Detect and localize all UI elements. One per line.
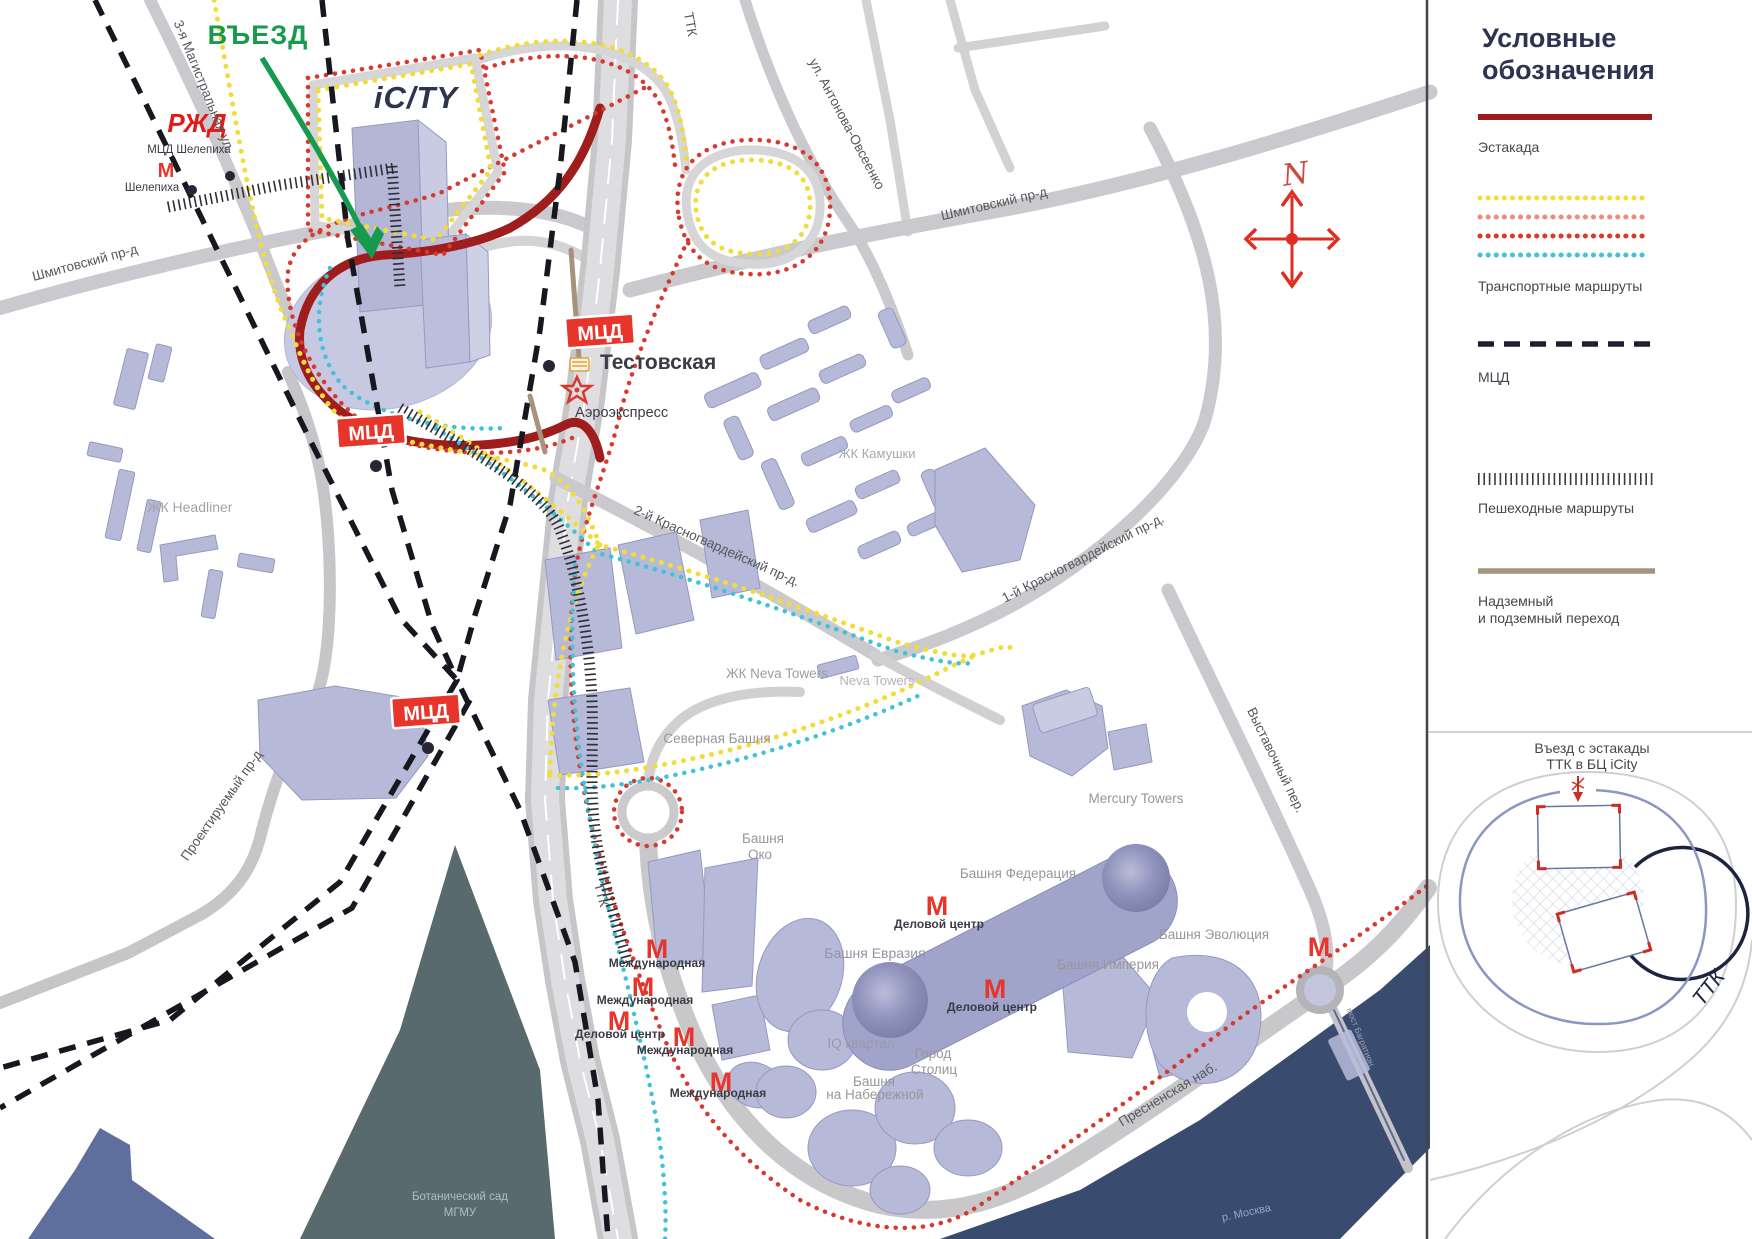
legend-crossing-label2: и подземный переход (1478, 610, 1619, 626)
legend-route-samples (1480, 198, 1650, 255)
mcd-badge-label: МЦД (577, 320, 624, 345)
legend-crossing-label1: Надземный (1478, 593, 1553, 609)
legend-title-line1: Условные (1482, 23, 1616, 53)
map-area: МЦД МЦД МЦД М М М М М М М М М РЖД МЦД Ше… (0, 0, 1430, 1239)
place-botsad-line1: Ботанический сад (412, 1191, 508, 1203)
station-label-mcd-shelepikha: МЦД Шелепиха (147, 144, 231, 156)
inset-black-arc (1625, 847, 1748, 979)
evolution-cut (1187, 992, 1227, 1032)
place-gorod-line1: Город (915, 1046, 952, 1061)
legend-estakada-label: Эстакада (1478, 139, 1539, 155)
place-evraziya: Башня Евразия (824, 945, 925, 961)
legend-transport-label: Транспортные маршруты (1478, 278, 1642, 294)
station-label-mezhdunarodnaya: Международная (609, 956, 705, 970)
street-ttk-south: ТТК (591, 881, 612, 909)
entrance-label: ВЪЕЗД (208, 20, 309, 50)
place-mercury: Mercury Towers (1088, 791, 1183, 806)
icity-logo: iC/TY (374, 80, 461, 115)
roundabout-bridge (1300, 970, 1340, 1010)
place-severnaya: Северная Башня (663, 731, 770, 746)
station-label-aeroexpress: Аэроэкспресс (575, 405, 668, 421)
place-headliner: ЖК Headliner (148, 499, 233, 515)
aeroexpress-mini-icon (570, 358, 589, 371)
legend-panel: Условные обозначения Эстакада Транспортн… (1427, 0, 1752, 1239)
street-ttk-north: ТТК (681, 11, 700, 38)
place-gorod-line2: Столиц (911, 1062, 957, 1077)
station-label-delovoy-centr: Деловой центр (575, 1027, 665, 1041)
legend-pedestrian-label: Пешеходные маршруты (1478, 500, 1634, 516)
pond (28, 1128, 215, 1239)
place-federation: Башня Федерация (960, 866, 1076, 881)
place-imperia: Башня Империя (1057, 957, 1159, 972)
access-map-page: МЦД МЦД МЦД М М М М М М М М М РЖД МЦД Ше… (0, 0, 1752, 1239)
station-label-delovoy-centr: Деловой центр (894, 917, 984, 931)
inset-site-plan: Въезд с эстакады ТТК в БЦ iCity ТТК (1430, 740, 1752, 1239)
place-kamushki: ЖК Камушки (839, 446, 916, 461)
mcd-badge-west: МЦД (336, 414, 406, 449)
metro-icon: М (1308, 932, 1331, 962)
place-botsad-line2: МГМУ (444, 1207, 477, 1219)
place-neva-towers2: Neva Towers (840, 673, 915, 688)
mcd-badge-south: МЦД (391, 694, 461, 729)
compass-rose: N (1246, 155, 1338, 286)
compass-north-label: N (1279, 155, 1313, 194)
place-neva-towers: ЖК Neva Towers (726, 666, 828, 681)
place-iq: IQ квартал (827, 1036, 894, 1051)
station-label-mezhdunarodnaya: Международная (670, 1086, 766, 1100)
place-oko-line1: Башня (742, 831, 784, 846)
inset-title-line2: ТТК в БЦ iCity (1546, 756, 1637, 772)
mcd-badge-label: МЦД (348, 420, 395, 445)
place-nab-line2: на Набережной (826, 1087, 923, 1102)
station-label-testovskaya: Тестовская (600, 351, 716, 374)
station-label-delovoy-centr: Деловой центр (947, 1000, 1037, 1014)
botanic-garden-park (300, 845, 555, 1239)
inset-title-line1: Въезд с эстакады (1534, 740, 1649, 756)
place-oko-line2: Око (748, 847, 772, 862)
station-label-mezhdunarodnaya: Международная (597, 993, 693, 1007)
map-canvas: МЦД МЦД МЦД М М М М М М М М М РЖД МЦД Ше… (0, 0, 1752, 1239)
roundabout-city (622, 786, 674, 838)
station-label-mezhdunarodnaya: Международная (637, 1043, 733, 1057)
mcd-badge-label: МЦД (403, 700, 450, 725)
place-evolution: Башня Эволюция (1159, 927, 1269, 942)
buildings (87, 287, 1261, 1214)
metro-icon: М (158, 160, 175, 182)
inset-building-1 (1537, 805, 1620, 868)
legend-mcd-label: МЦД (1478, 369, 1510, 385)
mcd-badge-testovskaya: МЦД (565, 314, 635, 349)
legend-title-line2: обозначения (1482, 55, 1655, 85)
station-label-shelepikha: Шелепиха (125, 182, 180, 194)
